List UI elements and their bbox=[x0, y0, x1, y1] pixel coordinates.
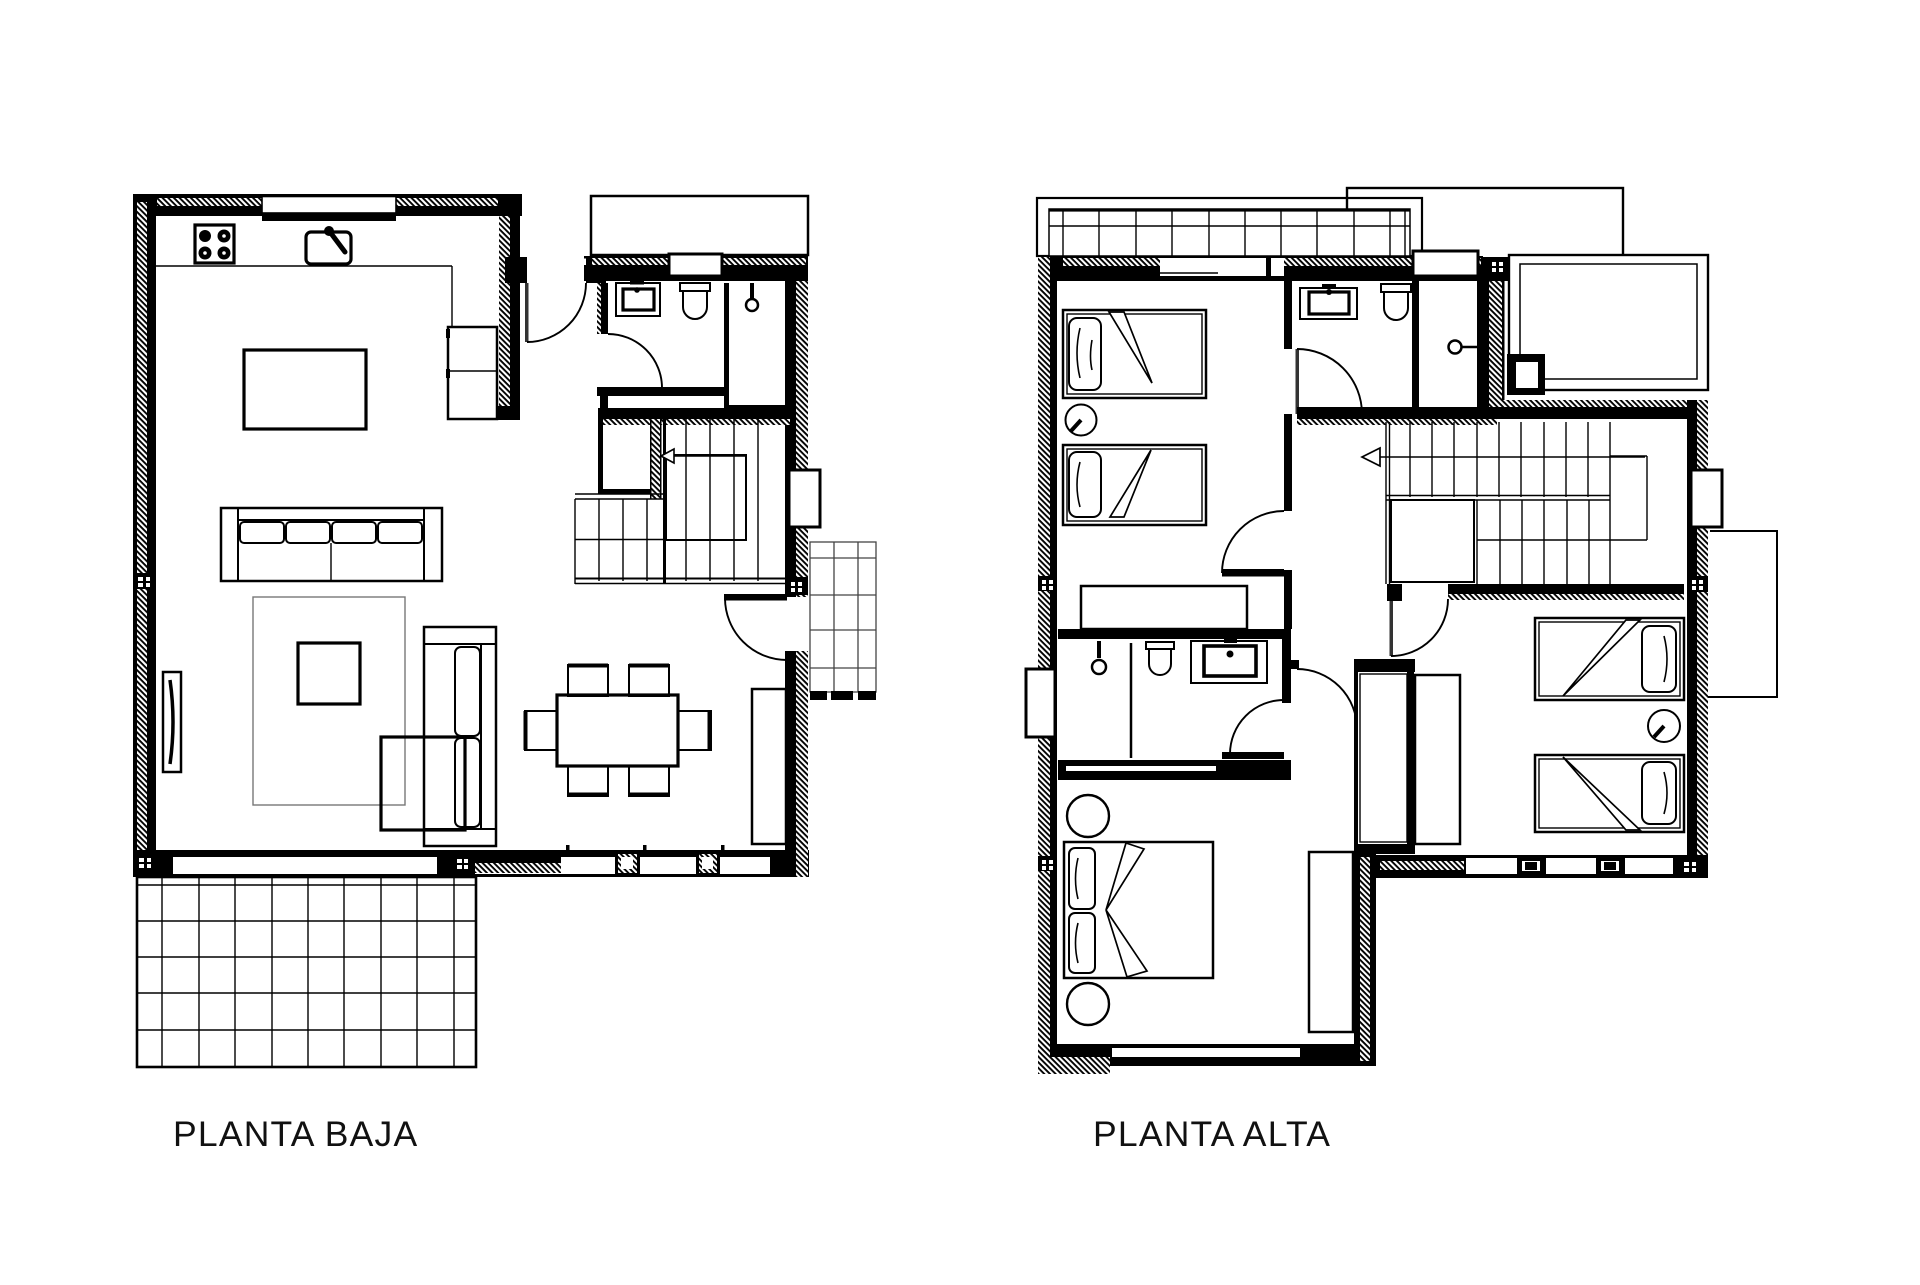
svg-text:PLANTA ALTA: PLANTA ALTA bbox=[1093, 1114, 1331, 1154]
svg-text:PLANTA BAJA: PLANTA BAJA bbox=[173, 1114, 418, 1154]
